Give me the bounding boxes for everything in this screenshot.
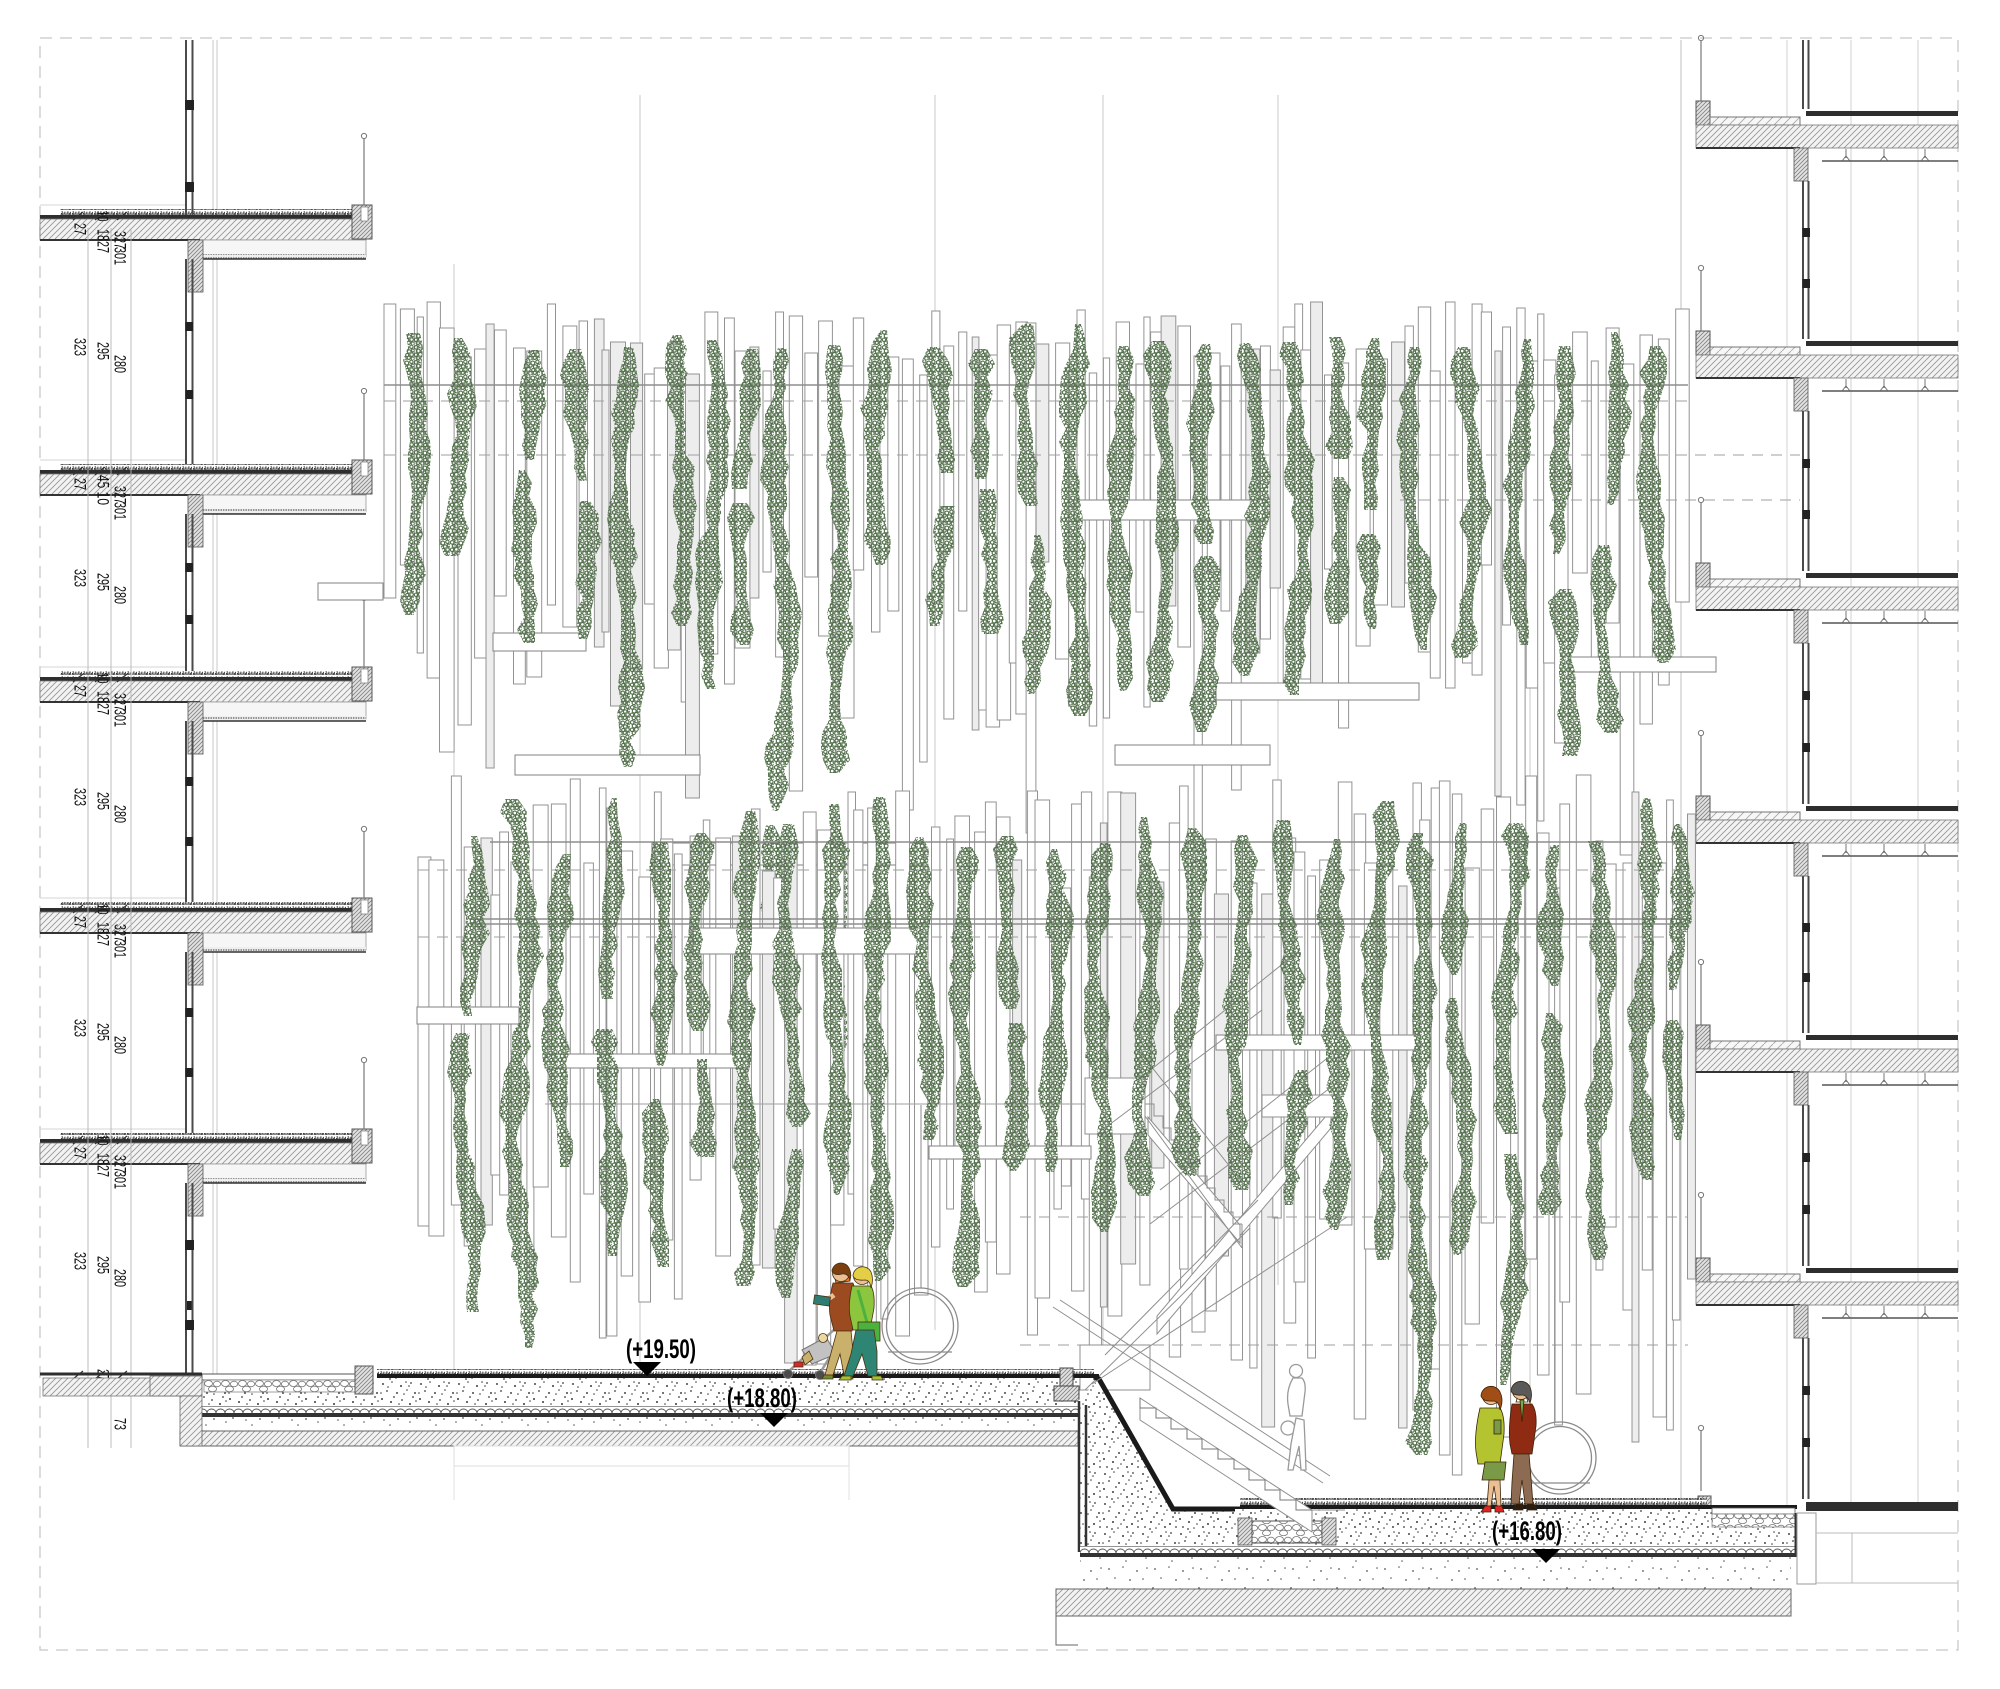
svg-text:295: 295 [94, 1256, 113, 1274]
svg-text:323: 323 [71, 338, 90, 356]
svg-text:280: 280 [111, 1269, 130, 1287]
svg-text:280: 280 [111, 586, 130, 604]
svg-text:10: 10 [94, 211, 111, 222]
svg-text:280: 280 [111, 1036, 130, 1054]
svg-text:10: 10 [94, 673, 111, 684]
svg-text:301: 301 [111, 940, 130, 958]
svg-text:1827: 1827 [94, 922, 113, 946]
svg-text:45 10: 45 10 [94, 475, 113, 505]
svg-text:27: 27 [71, 1147, 90, 1159]
svg-text:323: 323 [71, 1019, 90, 1037]
svg-text:27: 27 [71, 685, 90, 697]
svg-text:(+19.50): (+19.50) [626, 1334, 696, 1364]
svg-text:301: 301 [111, 709, 130, 727]
svg-text:73: 73 [111, 1418, 130, 1430]
svg-text:295: 295 [94, 792, 113, 810]
svg-text:323: 323 [71, 788, 90, 806]
svg-text:(+18.80): (+18.80) [727, 1383, 797, 1413]
svg-text:295: 295 [94, 342, 113, 360]
svg-text:301: 301 [111, 502, 130, 520]
svg-text:10: 10 [94, 904, 111, 915]
svg-text:280: 280 [111, 355, 130, 373]
svg-text:301: 301 [111, 247, 130, 265]
svg-text:280: 280 [111, 805, 130, 823]
svg-text:1827: 1827 [94, 229, 113, 253]
svg-text:(+16.80): (+16.80) [1492, 1516, 1562, 1546]
svg-text:295: 295 [94, 573, 113, 591]
svg-text:27: 27 [71, 478, 90, 490]
svg-text:295: 295 [94, 1023, 113, 1041]
svg-text:323: 323 [71, 1252, 90, 1270]
svg-text:10: 10 [94, 1135, 111, 1146]
svg-text:1827: 1827 [94, 691, 113, 715]
svg-text:1827: 1827 [94, 1153, 113, 1177]
svg-text:27: 27 [71, 916, 90, 928]
svg-text:323: 323 [71, 569, 90, 587]
svg-text:27: 27 [71, 223, 90, 235]
svg-text:301: 301 [111, 1171, 130, 1189]
